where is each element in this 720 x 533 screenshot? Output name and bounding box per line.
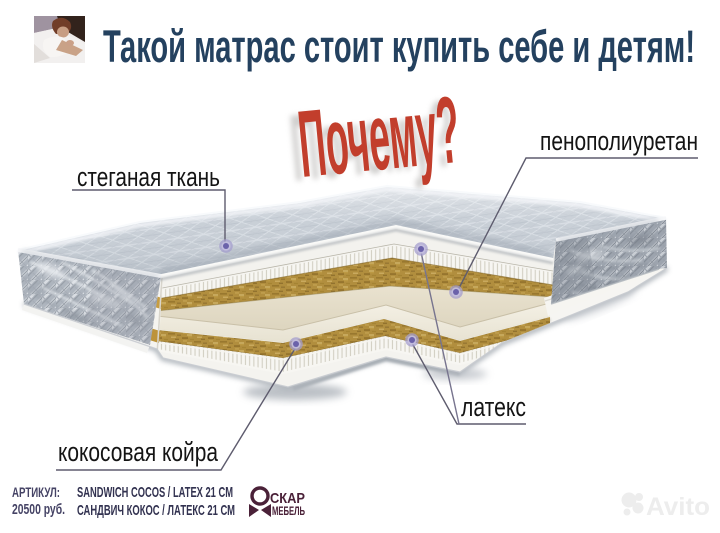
svg-text:Avito: Avito [646,493,710,521]
svg-text:САНДВИЧ КОКОС / ЛАТЕКС 21 СМ: САНДВИЧ КОКОС / ЛАТЕКС 21 СМ [77,502,235,519]
svg-text:АРТИКУЛ:: АРТИКУЛ: [12,484,60,500]
svg-text:латекс: латекс [461,392,526,422]
svg-text:кокосовая койра: кокосовая койра [58,437,219,467]
svg-text:SANDWICH COCOS / LATEX 21 CM: SANDWICH COCOS / LATEX 21 CM [77,484,233,501]
svg-text:20500 руб.: 20500 руб. [12,501,65,518]
svg-text:МЕБЕЛЬ: МЕБЕЛЬ [272,504,305,518]
svg-text:пенополиуретан: пенополиуретан [540,126,698,156]
svg-text:Такой матрас стоит купить себе: Такой матрас стоит купить себе и детям! [103,21,695,72]
svg-text:Почему?: Почему? [294,77,464,198]
svg-text:стеганая ткань: стеганая ткань [77,162,220,192]
